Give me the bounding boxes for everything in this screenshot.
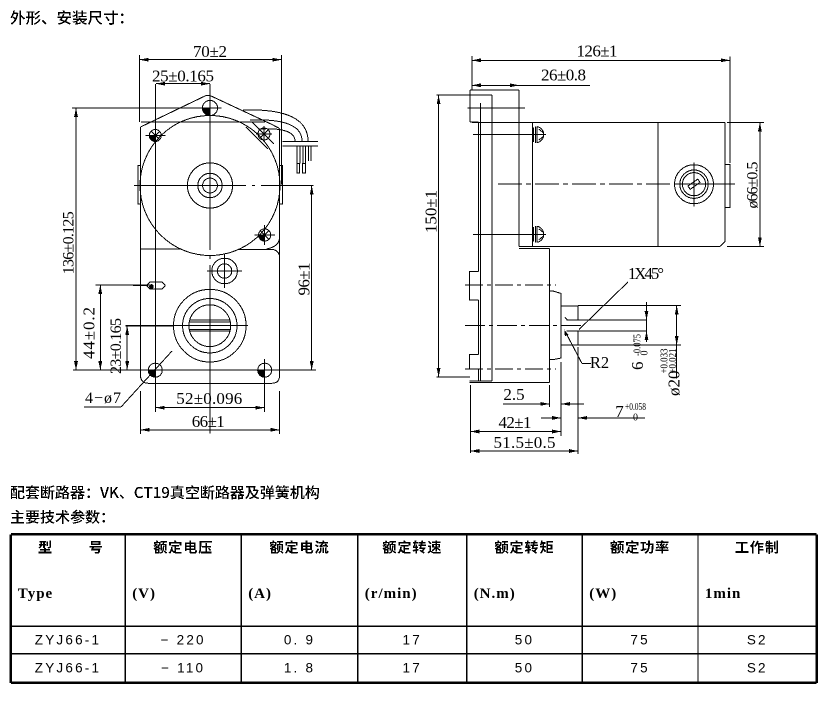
svg-text:17: 17 bbox=[403, 633, 422, 648]
svg-text:75: 75 bbox=[630, 661, 649, 676]
svg-text:+0.021: +0.021 bbox=[668, 349, 679, 374]
svg-text:(r/min): (r/min) bbox=[365, 586, 418, 602]
svg-text:1. 8: 1. 8 bbox=[284, 661, 315, 676]
svg-text:6: 6 bbox=[628, 362, 647, 371]
svg-text:ZYJ66-1: ZYJ66-1 bbox=[35, 633, 101, 648]
svg-text:− 110: − 110 bbox=[161, 661, 205, 676]
svg-text:(V): (V) bbox=[132, 586, 156, 602]
svg-text:2.5: 2.5 bbox=[503, 385, 524, 404]
svg-text:0. 9: 0. 9 bbox=[284, 633, 315, 648]
svg-text:75: 75 bbox=[630, 633, 649, 648]
svg-text:52±0.096: 52±0.096 bbox=[176, 389, 242, 408]
svg-text:(N.m): (N.m) bbox=[474, 586, 516, 602]
svg-text:150±1: 150±1 bbox=[421, 190, 440, 233]
svg-text:136±0.125: 136±0.125 bbox=[61, 211, 78, 274]
svg-text:1min: 1min bbox=[705, 586, 742, 602]
svg-text:1X45°: 1X45° bbox=[628, 264, 664, 283]
svg-text:70±2: 70±2 bbox=[193, 42, 227, 61]
svg-text:(W): (W) bbox=[589, 586, 617, 602]
svg-text:17: 17 bbox=[403, 661, 422, 676]
svg-text:51.5±0.5: 51.5±0.5 bbox=[494, 433, 556, 452]
svg-text:R2: R2 bbox=[590, 353, 609, 372]
svg-text:96±1: 96±1 bbox=[295, 263, 314, 296]
svg-text:Type: Type bbox=[18, 586, 53, 602]
svg-text:S2: S2 bbox=[747, 661, 768, 676]
svg-text:25±0.165: 25±0.165 bbox=[152, 67, 214, 86]
svg-text:S2: S2 bbox=[747, 633, 768, 648]
svg-text:4−ø7: 4−ø7 bbox=[85, 390, 121, 407]
svg-text:7: 7 bbox=[615, 402, 624, 421]
svg-text:42±1: 42±1 bbox=[499, 413, 532, 432]
svg-text:− 220: − 220 bbox=[161, 633, 206, 648]
svg-text:44±0.2: 44±0.2 bbox=[80, 307, 99, 359]
svg-text:26±0.8: 26±0.8 bbox=[541, 66, 586, 85]
svg-text:ø66±0.5: ø66±0.5 bbox=[744, 162, 761, 209]
svg-text:126±1: 126±1 bbox=[577, 42, 618, 61]
svg-text:ZYJ66-1: ZYJ66-1 bbox=[35, 661, 101, 676]
svg-text:50: 50 bbox=[515, 633, 534, 648]
svg-text:66±1: 66±1 bbox=[192, 412, 225, 431]
svg-text:(A): (A) bbox=[248, 586, 272, 602]
svg-text:+0.058: +0.058 bbox=[625, 402, 646, 413]
svg-text:0: 0 bbox=[633, 413, 638, 424]
svg-text:23±0.165: 23±0.165 bbox=[108, 318, 125, 374]
svg-text:50: 50 bbox=[515, 661, 534, 676]
